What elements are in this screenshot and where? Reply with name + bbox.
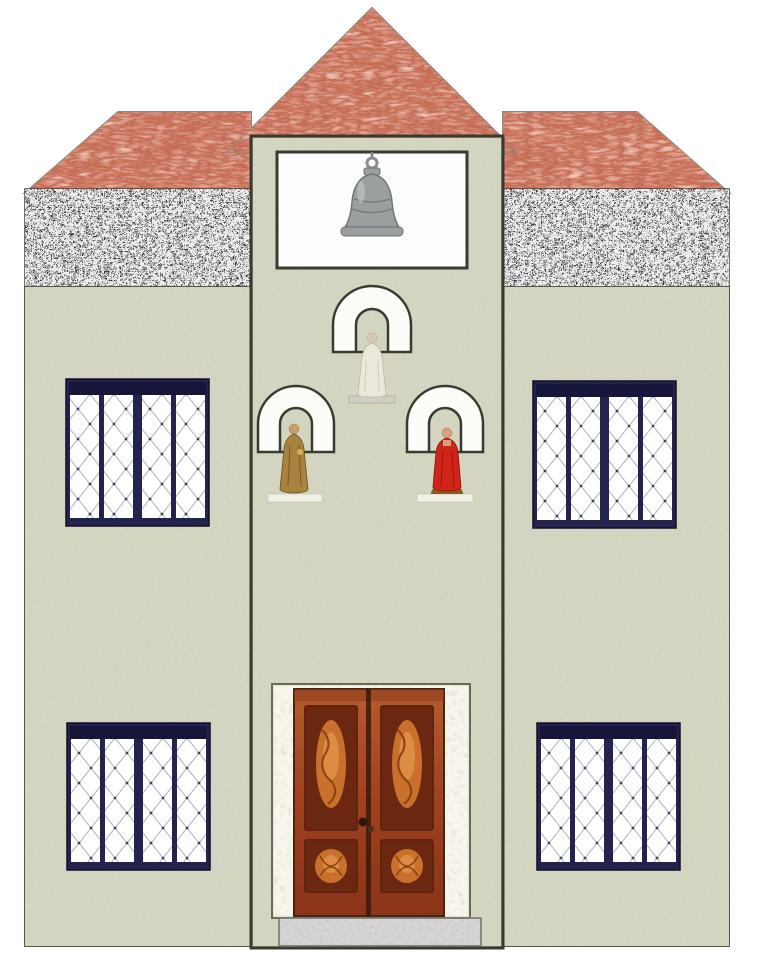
pediment-roof — [228, 8, 516, 152]
door-center-gap — [366, 689, 371, 916]
door-right-leaf — [381, 706, 433, 892]
window-lower-left — [67, 723, 210, 870]
door-left-leaf — [305, 706, 357, 892]
window-upper-left — [66, 379, 209, 526]
church-facade-illustration: Stylized collage of a church facade: cen… — [0, 0, 775, 968]
left-wing-roof — [25, 112, 251, 193]
right-wing-roof — [503, 112, 729, 193]
facade-canvas: Stylized collage of a church facade: cen… — [0, 0, 775, 968]
double-door — [294, 689, 444, 916]
window-lower-right — [537, 723, 680, 870]
granite-band-left — [25, 189, 251, 289]
granite-band-right — [503, 189, 729, 289]
window-upper-right — [533, 381, 676, 528]
entrance-step — [279, 918, 481, 946]
